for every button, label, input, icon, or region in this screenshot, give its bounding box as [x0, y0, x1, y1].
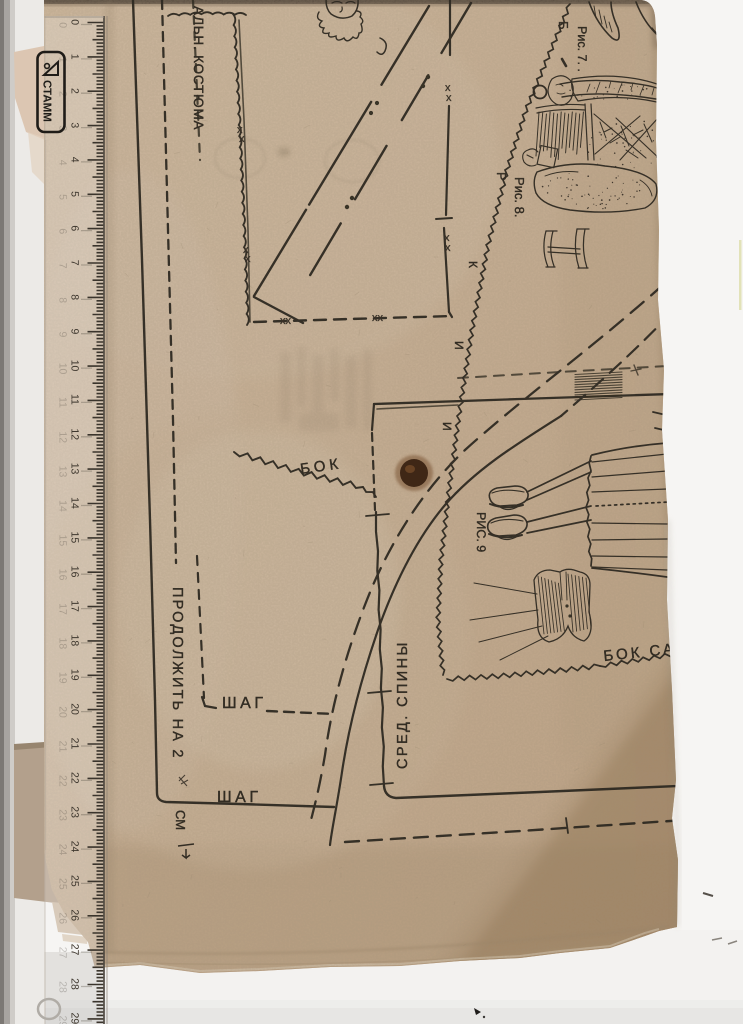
svg-text:27: 27 — [57, 947, 69, 959]
svg-text:РИС. 9: РИС. 9 — [474, 512, 488, 552]
svg-text:8: 8 — [69, 294, 81, 300]
svg-text:10: 10 — [57, 363, 69, 375]
svg-text:11: 11 — [69, 394, 81, 405]
svg-text:26: 26 — [69, 909, 81, 921]
svg-text:СРЕД. СПИНЫ: СРЕД. СПИНЫ — [395, 640, 411, 769]
svg-text:28: 28 — [57, 981, 69, 993]
svg-text:29: 29 — [69, 1013, 81, 1024]
svg-text:3: 3 — [69, 122, 81, 128]
svg-text:2: 2 — [57, 91, 69, 97]
svg-text:21: 21 — [57, 741, 69, 753]
svg-text:9: 9 — [69, 329, 81, 335]
svg-text:18: 18 — [69, 635, 81, 647]
svg-text:21: 21 — [69, 738, 81, 750]
svg-text:1: 1 — [69, 54, 81, 60]
svg-text:15: 15 — [69, 532, 81, 544]
svg-text:19: 19 — [69, 669, 81, 681]
svg-text:10: 10 — [69, 360, 81, 372]
svg-text:x: x — [239, 133, 245, 145]
svg-text:5: 5 — [57, 194, 69, 200]
svg-text:x: x — [245, 253, 251, 265]
svg-text:28: 28 — [69, 978, 81, 990]
svg-text:14: 14 — [69, 497, 81, 509]
svg-text:6: 6 — [57, 228, 69, 234]
svg-text:13: 13 — [57, 466, 69, 478]
svg-text:6: 6 — [69, 225, 81, 231]
svg-text:СТАММ: СТАММ — [41, 80, 53, 122]
svg-text:14: 14 — [57, 500, 69, 512]
svg-text:20: 20 — [57, 706, 69, 718]
svg-text:8: 8 — [57, 297, 69, 303]
svg-text:0: 0 — [57, 22, 69, 28]
svg-text:И: И — [452, 341, 466, 350]
svg-text:Р: Р — [494, 172, 509, 181]
svg-text:Рис. 7. .: Рис. 7. . — [575, 26, 589, 72]
svg-text:7: 7 — [69, 260, 81, 266]
svg-text:12: 12 — [57, 431, 69, 443]
svg-text:Б: Б — [556, 21, 571, 30]
svg-text:АЛЬН. КОСТЮМА: АЛЬН. КОСТЮМА — [191, 6, 206, 130]
svg-text:СМ: СМ — [173, 810, 188, 830]
svg-text:11: 11 — [57, 397, 69, 408]
svg-text:23: 23 — [57, 809, 69, 821]
svg-text:17: 17 — [69, 600, 81, 612]
svg-text:13: 13 — [69, 463, 81, 475]
svg-text:16: 16 — [69, 566, 81, 578]
svg-text:17: 17 — [57, 603, 69, 615]
svg-text:29: 29 — [57, 1016, 69, 1024]
svg-text:15: 15 — [57, 535, 69, 547]
svg-text:2: 2 — [69, 88, 81, 94]
svg-text:19: 19 — [57, 672, 69, 684]
svg-text:26: 26 — [57, 912, 69, 924]
svg-text:К: К — [466, 261, 480, 268]
svg-text:4: 4 — [57, 160, 69, 166]
svg-text:ШАГ: ШАГ — [217, 789, 262, 806]
svg-text:0: 0 — [69, 19, 81, 25]
svg-text:24: 24 — [57, 844, 69, 856]
svg-text:25: 25 — [69, 875, 81, 887]
svg-text:5: 5 — [69, 191, 81, 197]
svg-text:ПРОДОЛЖИТЬ НА 2: ПРОДОЛЖИТЬ НА 2 — [169, 587, 185, 760]
svg-text:xx: xx — [372, 312, 384, 324]
svg-text:И: И — [440, 422, 454, 431]
svg-text:x: x — [446, 92, 452, 104]
svg-text:23: 23 — [69, 806, 81, 818]
svg-text:16: 16 — [57, 569, 69, 581]
svg-text:x: x — [445, 242, 451, 254]
svg-text:Рис. 8.: Рис. 8. — [512, 177, 527, 218]
svg-text:20: 20 — [69, 703, 81, 715]
svg-text:ШАГ: ШАГ — [222, 695, 267, 712]
svg-text:xx: xx — [280, 315, 292, 327]
svg-text:27: 27 — [69, 944, 81, 956]
svg-text:22: 22 — [57, 775, 69, 787]
svg-text:22: 22 — [69, 772, 81, 784]
svg-text:4: 4 — [69, 157, 81, 163]
svg-text:24: 24 — [69, 841, 81, 853]
svg-text:25: 25 — [57, 878, 69, 890]
svg-text:12: 12 — [69, 428, 81, 440]
svg-text:7: 7 — [57, 263, 69, 269]
svg-text:18: 18 — [57, 638, 69, 650]
svg-text:9: 9 — [57, 332, 69, 338]
